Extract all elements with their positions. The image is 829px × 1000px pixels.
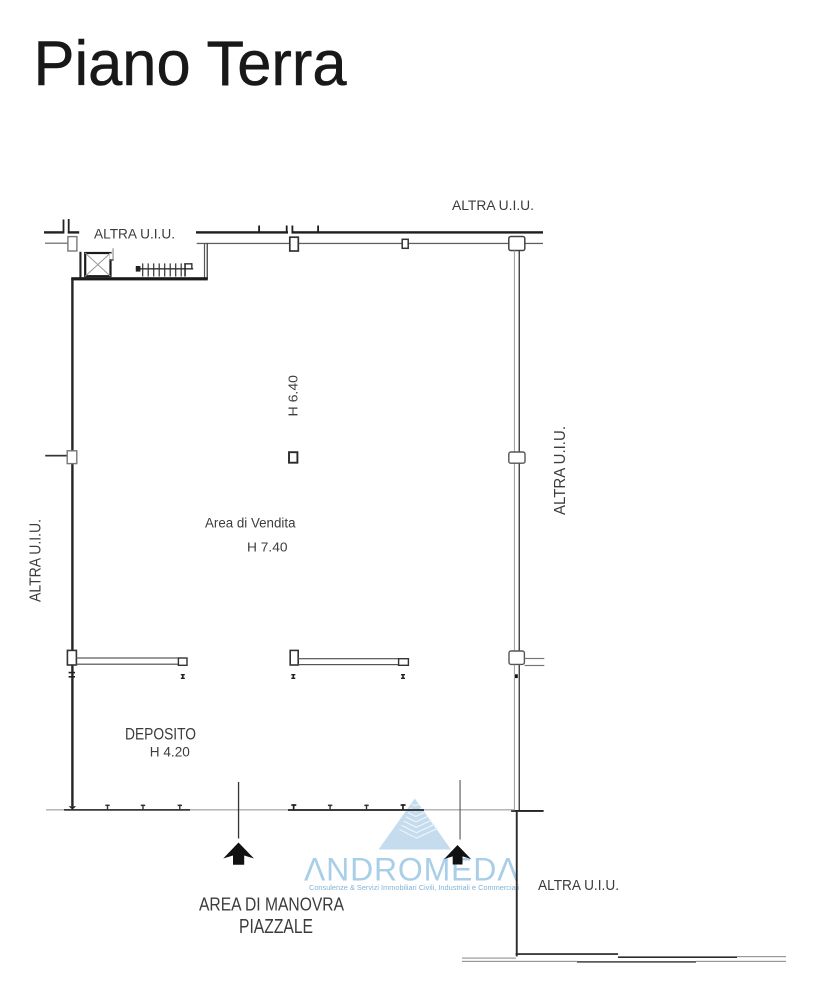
svg-text:AREA DI MANOVRA: AREA DI MANOVRA — [199, 895, 344, 915]
svg-text:ALTRA U.I.U.: ALTRA U.I.U. — [552, 426, 569, 515]
svg-text:ALTRA U.I.U.: ALTRA U.I.U. — [452, 197, 534, 213]
svg-text:ALTRA U.I.U.: ALTRA U.I.U. — [94, 226, 175, 242]
svg-text:ΛNDROMEDΛ: ΛNDROMEDΛ — [304, 852, 519, 888]
svg-text:H 4.20: H 4.20 — [150, 745, 190, 760]
svg-text:Piano Terra: Piano Terra — [34, 29, 348, 99]
svg-text:PIAZZALE: PIAZZALE — [239, 916, 313, 938]
svg-text:H 6.40: H 6.40 — [287, 375, 301, 417]
svg-text:DEPOSITO: DEPOSITO — [125, 725, 196, 743]
svg-text:H 7.40: H 7.40 — [247, 540, 288, 555]
svg-text:Area di Vendita: Area di Vendita — [205, 516, 296, 531]
svg-text:ALTRA U.I.U.: ALTRA U.I.U. — [28, 519, 45, 602]
svg-text:Consulenze & Servizi Immobilia: Consulenze & Servizi Immobiliari Civili,… — [309, 885, 519, 892]
svg-text:ALTRA U.I.U.: ALTRA U.I.U. — [538, 877, 619, 894]
